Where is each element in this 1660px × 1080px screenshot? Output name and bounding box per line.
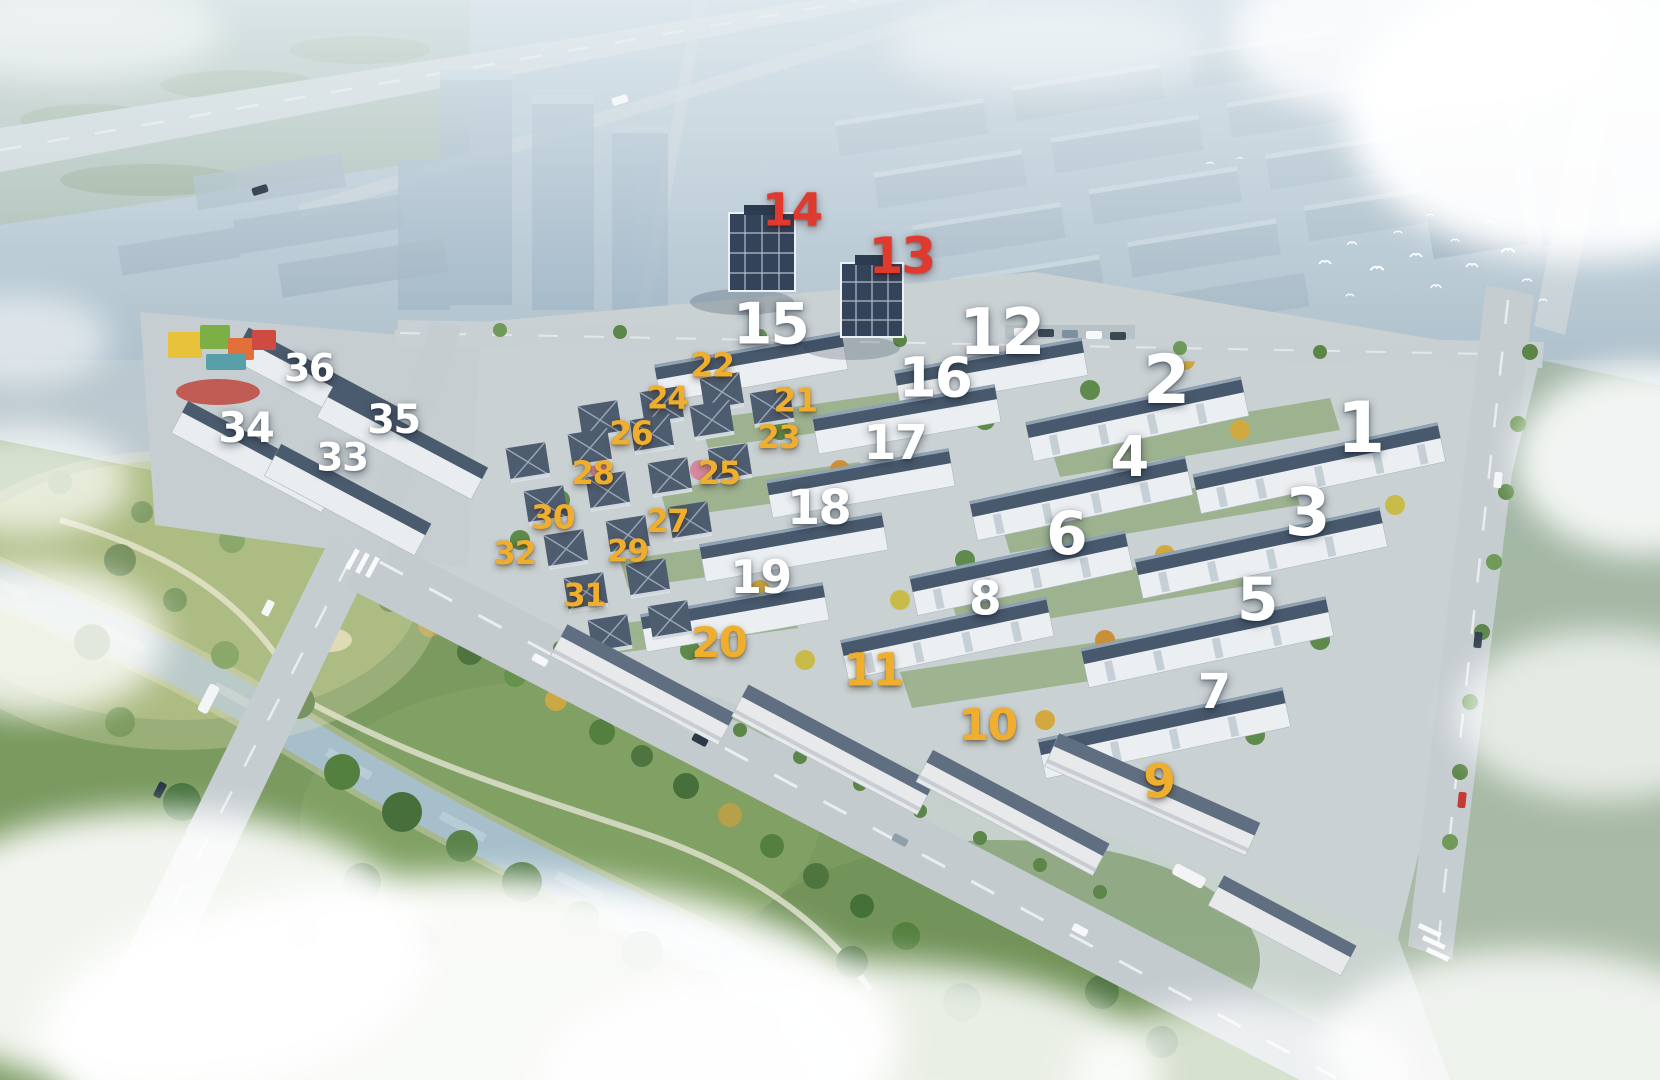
aerial-scene [0,0,1660,1080]
playground [176,379,260,405]
masterplan-rendering: 1234567891011121314151617181920212223242… [0,0,1660,1080]
